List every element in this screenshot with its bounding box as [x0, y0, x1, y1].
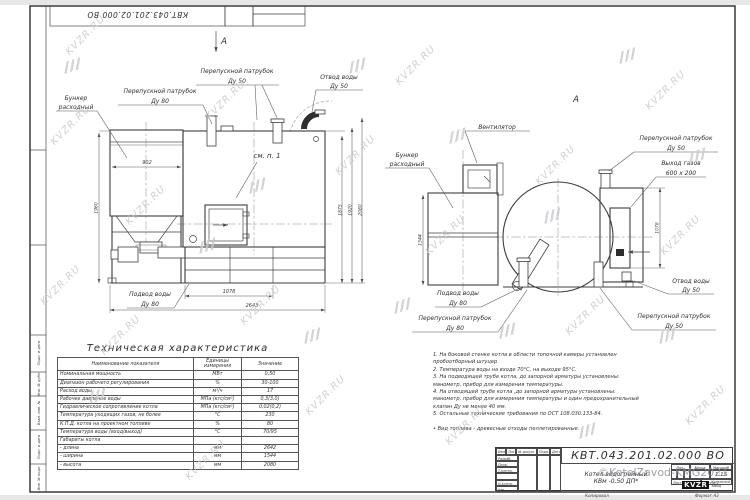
label-bypass-50: Перепускной патрубок: [201, 68, 274, 75]
spec-cell: МПа (кгс/см²): [194, 404, 242, 412]
front-view: А: [56, 31, 365, 313]
spec-header: Единицы измерения: [194, 358, 242, 371]
tb-col-list: Лист: [506, 448, 516, 455]
tb-scale-value: 1:15: [710, 470, 732, 479]
dim-2643: 2643: [246, 303, 259, 309]
side-gas-outlet: [599, 170, 650, 287]
label-gas-exit: Выход газов: [661, 160, 701, 167]
note-line: манометр, прибор для измерения температу…: [433, 382, 735, 389]
spec-row: Рабочее давление водыМПа (кгс/см²)0,3(3,…: [58, 396, 299, 404]
spec-row: Номинальная мощностьМВт0,50: [58, 371, 299, 379]
label-fan: Вентилятор: [478, 124, 516, 131]
spec-cell: 17: [242, 387, 299, 395]
note-line: 3. На подводящей трубе котла, до запорно…: [433, 374, 735, 381]
spec-cell: МПа (кгс/см²): [194, 396, 242, 404]
label-water-inlet-side: Ду 80: [448, 300, 467, 307]
spec-row: - ширинамм1544: [58, 453, 299, 461]
dim-1920: 1920: [348, 204, 354, 216]
spec-cell: К.П.Д. котла на проектном топливе: [58, 420, 194, 428]
label-gas-exit: 600 х 200: [666, 170, 696, 177]
note-line: 4. На отводящей трубе котла ,до запорной…: [433, 389, 735, 396]
spec-cell: - ширина: [58, 453, 194, 461]
spec-cell: Габариты котла: [58, 437, 194, 445]
doc-number: КВТ.043.201.02.000 ВО: [561, 448, 734, 464]
copied-label: Копировал: [585, 493, 609, 498]
frame-stamp-label: Подп. и дата: [37, 341, 41, 365]
kvzr-logo-caption: Котельный завод: [711, 481, 730, 488]
note-line: клапан Ду не менее 40 мм.: [433, 404, 735, 411]
spec-row: - длинамм2642: [58, 445, 299, 453]
spec-row: К.П.Д. котла на проектном топливе%80: [58, 420, 299, 428]
spec-header: Значение: [242, 358, 299, 371]
spec-cell: [242, 437, 299, 445]
label-bypass-50: Ду 50: [227, 78, 246, 85]
label-hopper-side: расходный: [389, 161, 425, 168]
spec-cell: [194, 437, 242, 445]
tb-row-blank: [496, 473, 518, 480]
spec-cell: Расход воды: [58, 387, 194, 395]
dim-1544: 1544: [418, 234, 424, 246]
spec-cell: °С: [194, 428, 242, 436]
note-line: пробоотборный штуцер.: [433, 359, 735, 366]
note-spacer: [433, 419, 735, 426]
view-label-a: А: [572, 95, 579, 105]
spec-cell: 230: [242, 412, 299, 420]
notes-block: 1. На боковой стенке котла в области топ…: [433, 352, 735, 433]
label-water-outlet: Ду 50: [329, 83, 348, 90]
note-line: 5. Остальные технические требования по О…: [433, 411, 735, 418]
side-dimensions: 1544 1078: [418, 188, 666, 285]
spec-cell: мм: [194, 445, 242, 453]
doc-number-rotated: КВТ.043.201.02.000 ВО: [87, 10, 188, 19]
tb-col-podp: Подп.: [537, 448, 550, 455]
spec-cell: Гидравлическое сопротивление котла: [58, 404, 194, 412]
label-bypass-50-top: Перепускной патрубок: [640, 135, 713, 142]
spec-row: Температура воды (вход/выход)°С70/95: [58, 428, 299, 436]
spec-cell: 30-100: [242, 379, 299, 387]
spec-cell: %: [194, 420, 242, 428]
label-bypass-50-bottom: Перепускной патрубок: [638, 313, 711, 320]
spec-cell: 1544: [242, 453, 299, 461]
dim-1078-side: 1078: [655, 222, 661, 234]
frame-stamp-label: Инв. № подл.: [37, 466, 41, 491]
spec-cell: - высота: [58, 461, 194, 469]
spec-cell: Температура воды (вход/выход): [58, 428, 194, 436]
tb-names-col: [518, 455, 537, 492]
top-doc-stamp: КВТ.043.201.02.000 ВО: [50, 6, 305, 26]
spec-cell: 0,02(0,2): [242, 404, 299, 412]
spec-row: Расход водым³/ч17: [58, 387, 299, 395]
front-hopper: [108, 130, 185, 283]
label-bypass-80-side: Ду 80: [445, 325, 464, 332]
doc-title-line1: Котел водогрейный: [585, 471, 648, 478]
label-bypass-50-top: Ду 50: [666, 145, 685, 152]
frame-stamp-label: Взам. инв. №: [37, 401, 41, 426]
kvzr-logo-text: KVZR: [682, 481, 709, 489]
kvzr-logo: KVZR Котельный завод: [682, 481, 730, 489]
spec-cell: мм: [194, 453, 242, 461]
tb-col-ndoc: № докум.: [516, 448, 537, 455]
label-hopper: Бункер: [65, 95, 88, 102]
tb-date-col: [550, 455, 561, 492]
spec-header: Наименование показателя: [58, 358, 194, 371]
spec-cell: 70/95: [242, 428, 299, 436]
tb-row-utv: Утв.: [496, 486, 518, 492]
note-line: 1. На боковой стенке котла в области топ…: [433, 352, 735, 359]
dim-1078: 1078: [223, 289, 236, 295]
spec-cell: 0,3(3,0): [242, 396, 299, 404]
spec-cell: 2080: [242, 461, 299, 469]
title-block: Изм. Лист № докум. Подп. Дата Разраб. Пр…: [495, 447, 733, 491]
spec-cell: м³/ч: [194, 387, 242, 395]
frame-stamp-label: Подп. и дата: [37, 435, 41, 459]
label-hopper: расходный: [58, 104, 94, 111]
dim-902: 902: [142, 160, 152, 166]
label-bypass-80: Ду 80: [150, 98, 169, 105]
dim-2080: 2080: [358, 204, 364, 216]
spec-cell: °С: [194, 412, 242, 420]
label-water-outlet-side: Ду 50: [681, 287, 700, 294]
side-view: А: [385, 95, 718, 332]
spec-row: Диапазон рабочего регулирования%30-100: [58, 379, 299, 387]
kvzr-caption-line2: завод: [711, 484, 721, 488]
doc-title-line2: КВм -0,50 ДП*: [594, 478, 638, 485]
dim-1875: 1875: [338, 204, 344, 216]
label-water-outlet-side: Отвод воды: [672, 278, 710, 285]
spec-cell: 0,50: [242, 371, 299, 379]
dim-1960: 1960: [94, 202, 100, 214]
label-hopper-side: Бункер: [396, 152, 419, 159]
spec-table-block: Техническая характеристика Наименование …: [57, 343, 299, 470]
spec-cell: 80: [242, 420, 299, 428]
note-fuel-type: • Вид топлива - древесные отходы пеллети…: [433, 426, 735, 433]
spec-header-row: Наименование показателя Единицы измерени…: [58, 358, 299, 371]
front-boiler-body: [110, 101, 332, 283]
spec-cell: Номинальная мощность: [58, 371, 194, 379]
format-label: Формат А3: [695, 493, 719, 498]
tb-col-data: Дата: [550, 448, 561, 455]
note-line: манометр, прибор для измерения температу…: [433, 396, 735, 403]
label-water-inlet: Ду 80: [140, 301, 159, 308]
label-water-outlet: Отвод воды: [320, 74, 358, 81]
note-line: 2. Температура воды на входе 70°С, на вы…: [433, 367, 735, 374]
label-bypass-80-side: Перепускной патрубок: [419, 315, 492, 322]
label-water-inlet: Подвод воды: [129, 291, 171, 298]
doc-title: Котел водогрейный КВм -0,50 ДП*: [561, 464, 671, 491]
spec-row: Температура уходящих газов, не более°С23…: [58, 412, 299, 420]
spec-cell: МВт: [194, 371, 242, 379]
label-bypass-80: Перепускной патрубок: [124, 88, 197, 95]
spec-row: - высотамм2080: [58, 461, 299, 469]
label-water-inlet-side: Подвод воды: [437, 290, 479, 297]
label-see-note-1: см. п. 1: [253, 152, 280, 160]
view-arrow-label: А: [220, 37, 227, 47]
frame-stamp-label: Инв. № дубл.: [37, 372, 41, 397]
drawing-sheet: Подп. и дата Инв. № дубл. Взам. инв. № П…: [0, 0, 750, 500]
spec-row: Гидравлическое сопротивление котлаМПа (к…: [58, 404, 299, 412]
spec-table: Наименование показателя Единицы измерени…: [57, 357, 299, 470]
spec-cell: - длина: [58, 445, 194, 453]
spec-row: Габариты котла: [58, 437, 299, 445]
spec-cell: мм: [194, 461, 242, 469]
side-hopper: [428, 163, 503, 285]
spec-cell: Рабочее давление воды: [58, 396, 194, 404]
spec-cell: 2642: [242, 445, 299, 453]
tb-mass-cell: [690, 470, 710, 479]
spec-cell: Диапазон рабочего регулирования: [58, 379, 194, 387]
tb-sign-col: [537, 455, 550, 492]
label-bypass-50-bottom: Ду 50: [664, 323, 683, 330]
spec-cell: Температура уходящих газов, не более: [58, 412, 194, 420]
tb-col-izm: Изм.: [496, 448, 506, 455]
spec-title: Техническая характеристика: [57, 343, 298, 354]
spec-cell: %: [194, 379, 242, 387]
